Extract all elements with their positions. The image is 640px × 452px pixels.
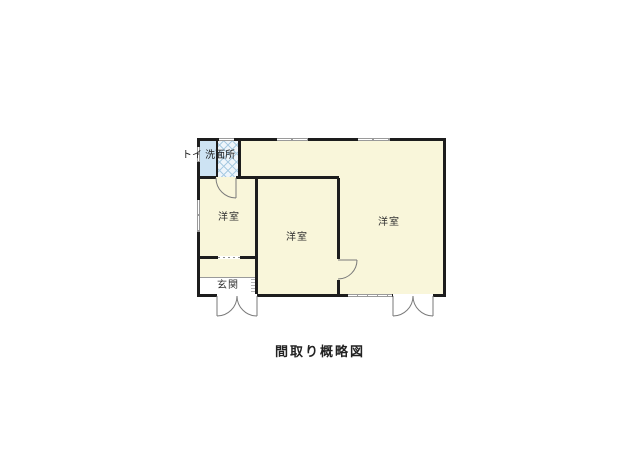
entrance-step-line [200, 277, 256, 278]
window-left-room [197, 200, 200, 232]
door-arc-entrance-left [217, 296, 237, 316]
label-room-center: 洋室 [286, 232, 308, 244]
label-entrance: 玄関 [217, 280, 239, 292]
label-room-left: 洋室 [218, 212, 240, 224]
door-arc-rightroom-left [393, 296, 413, 316]
sliding-door [218, 256, 240, 259]
wall-washroom-right [238, 138, 241, 178]
door-arc-rightroom-right [413, 296, 433, 316]
door-arc-entrance-right [237, 296, 257, 316]
plan-caption: 間取り概略図 [0, 341, 640, 360]
wall-horizontal-left-segment [200, 176, 216, 179]
label-room-right: 洋室 [378, 217, 400, 229]
right-room-door-opening [393, 294, 433, 297]
window-bottom-right-room [348, 294, 392, 297]
entrance-door-opening [217, 294, 257, 297]
label-toilet-washroom: トイ 洗面所 [182, 150, 235, 162]
wall-horizontal-right-segment [236, 176, 339, 179]
window-top-washroom [219, 138, 234, 141]
window-top-right [358, 138, 390, 141]
wall-center-right-lower [337, 280, 340, 294]
window-top-left [277, 138, 308, 141]
wall-left-center-divider [255, 178, 258, 294]
floor-plan-page: トイ 洗面所 洋室 洋室 洋室 玄関 間取り概略図 [0, 0, 640, 452]
wall-hall-right-segment [240, 256, 256, 259]
wall-center-right-upper [337, 178, 340, 259]
wall-hall-left-segment [200, 256, 218, 259]
